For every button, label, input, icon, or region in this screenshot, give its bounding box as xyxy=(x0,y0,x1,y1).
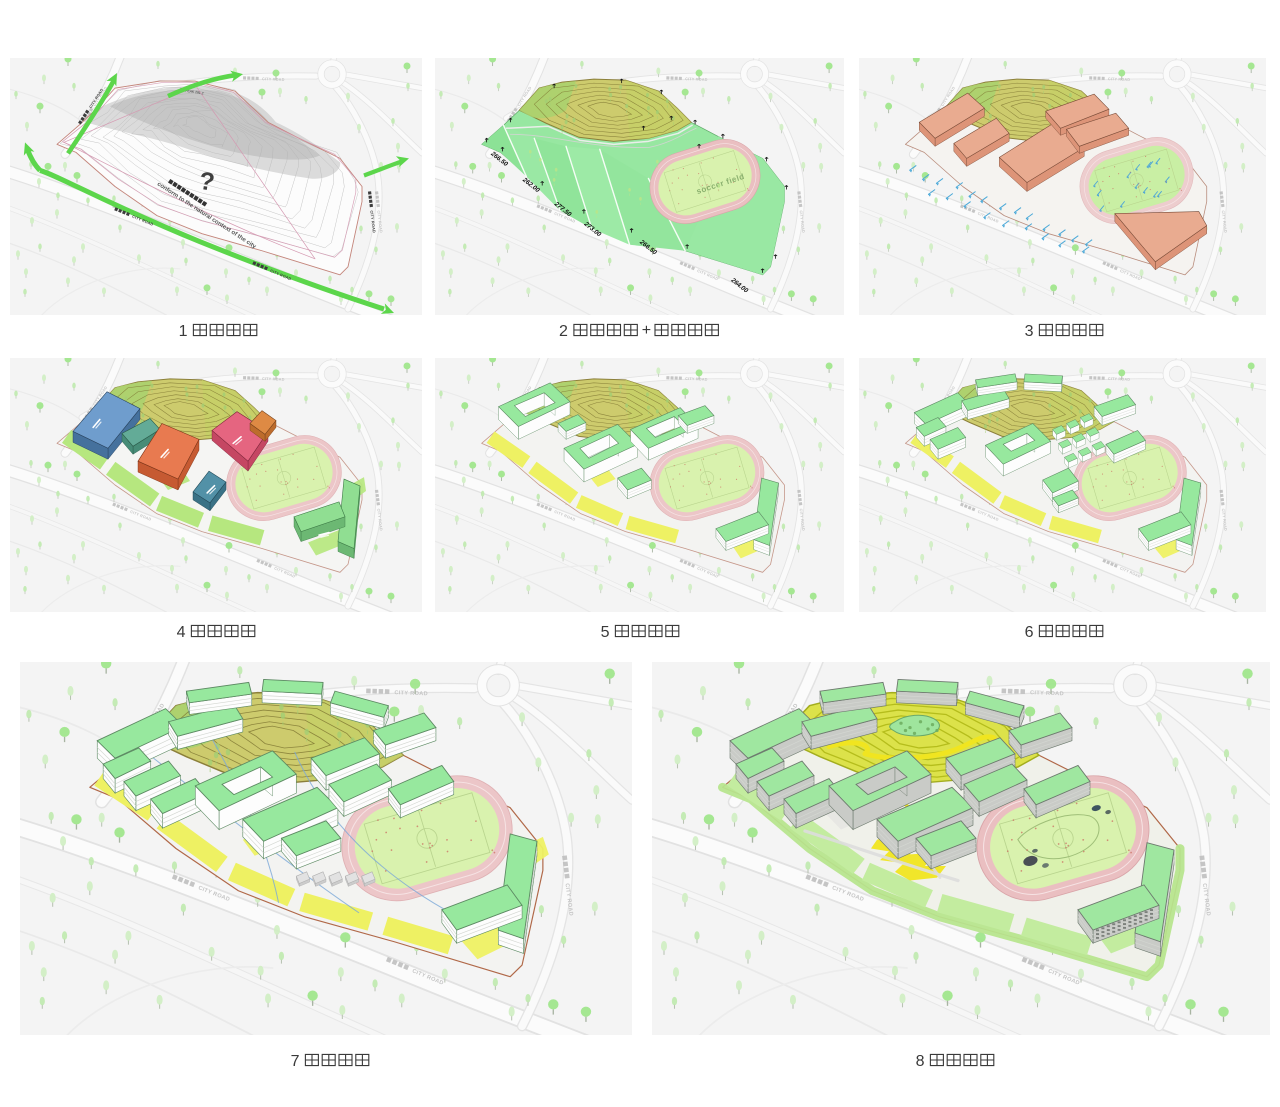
svg-text:1: 1 xyxy=(179,323,188,340)
svg-text:6: 6 xyxy=(1025,624,1034,641)
svg-text:5: 5 xyxy=(601,624,610,641)
svg-text:8: 8 xyxy=(916,1053,925,1070)
svg-text:7: 7 xyxy=(291,1053,300,1070)
svg-text:4: 4 xyxy=(177,624,186,641)
svg-text:+: + xyxy=(642,322,651,339)
svg-text:2: 2 xyxy=(559,323,568,340)
svg-text:3: 3 xyxy=(1025,323,1034,340)
